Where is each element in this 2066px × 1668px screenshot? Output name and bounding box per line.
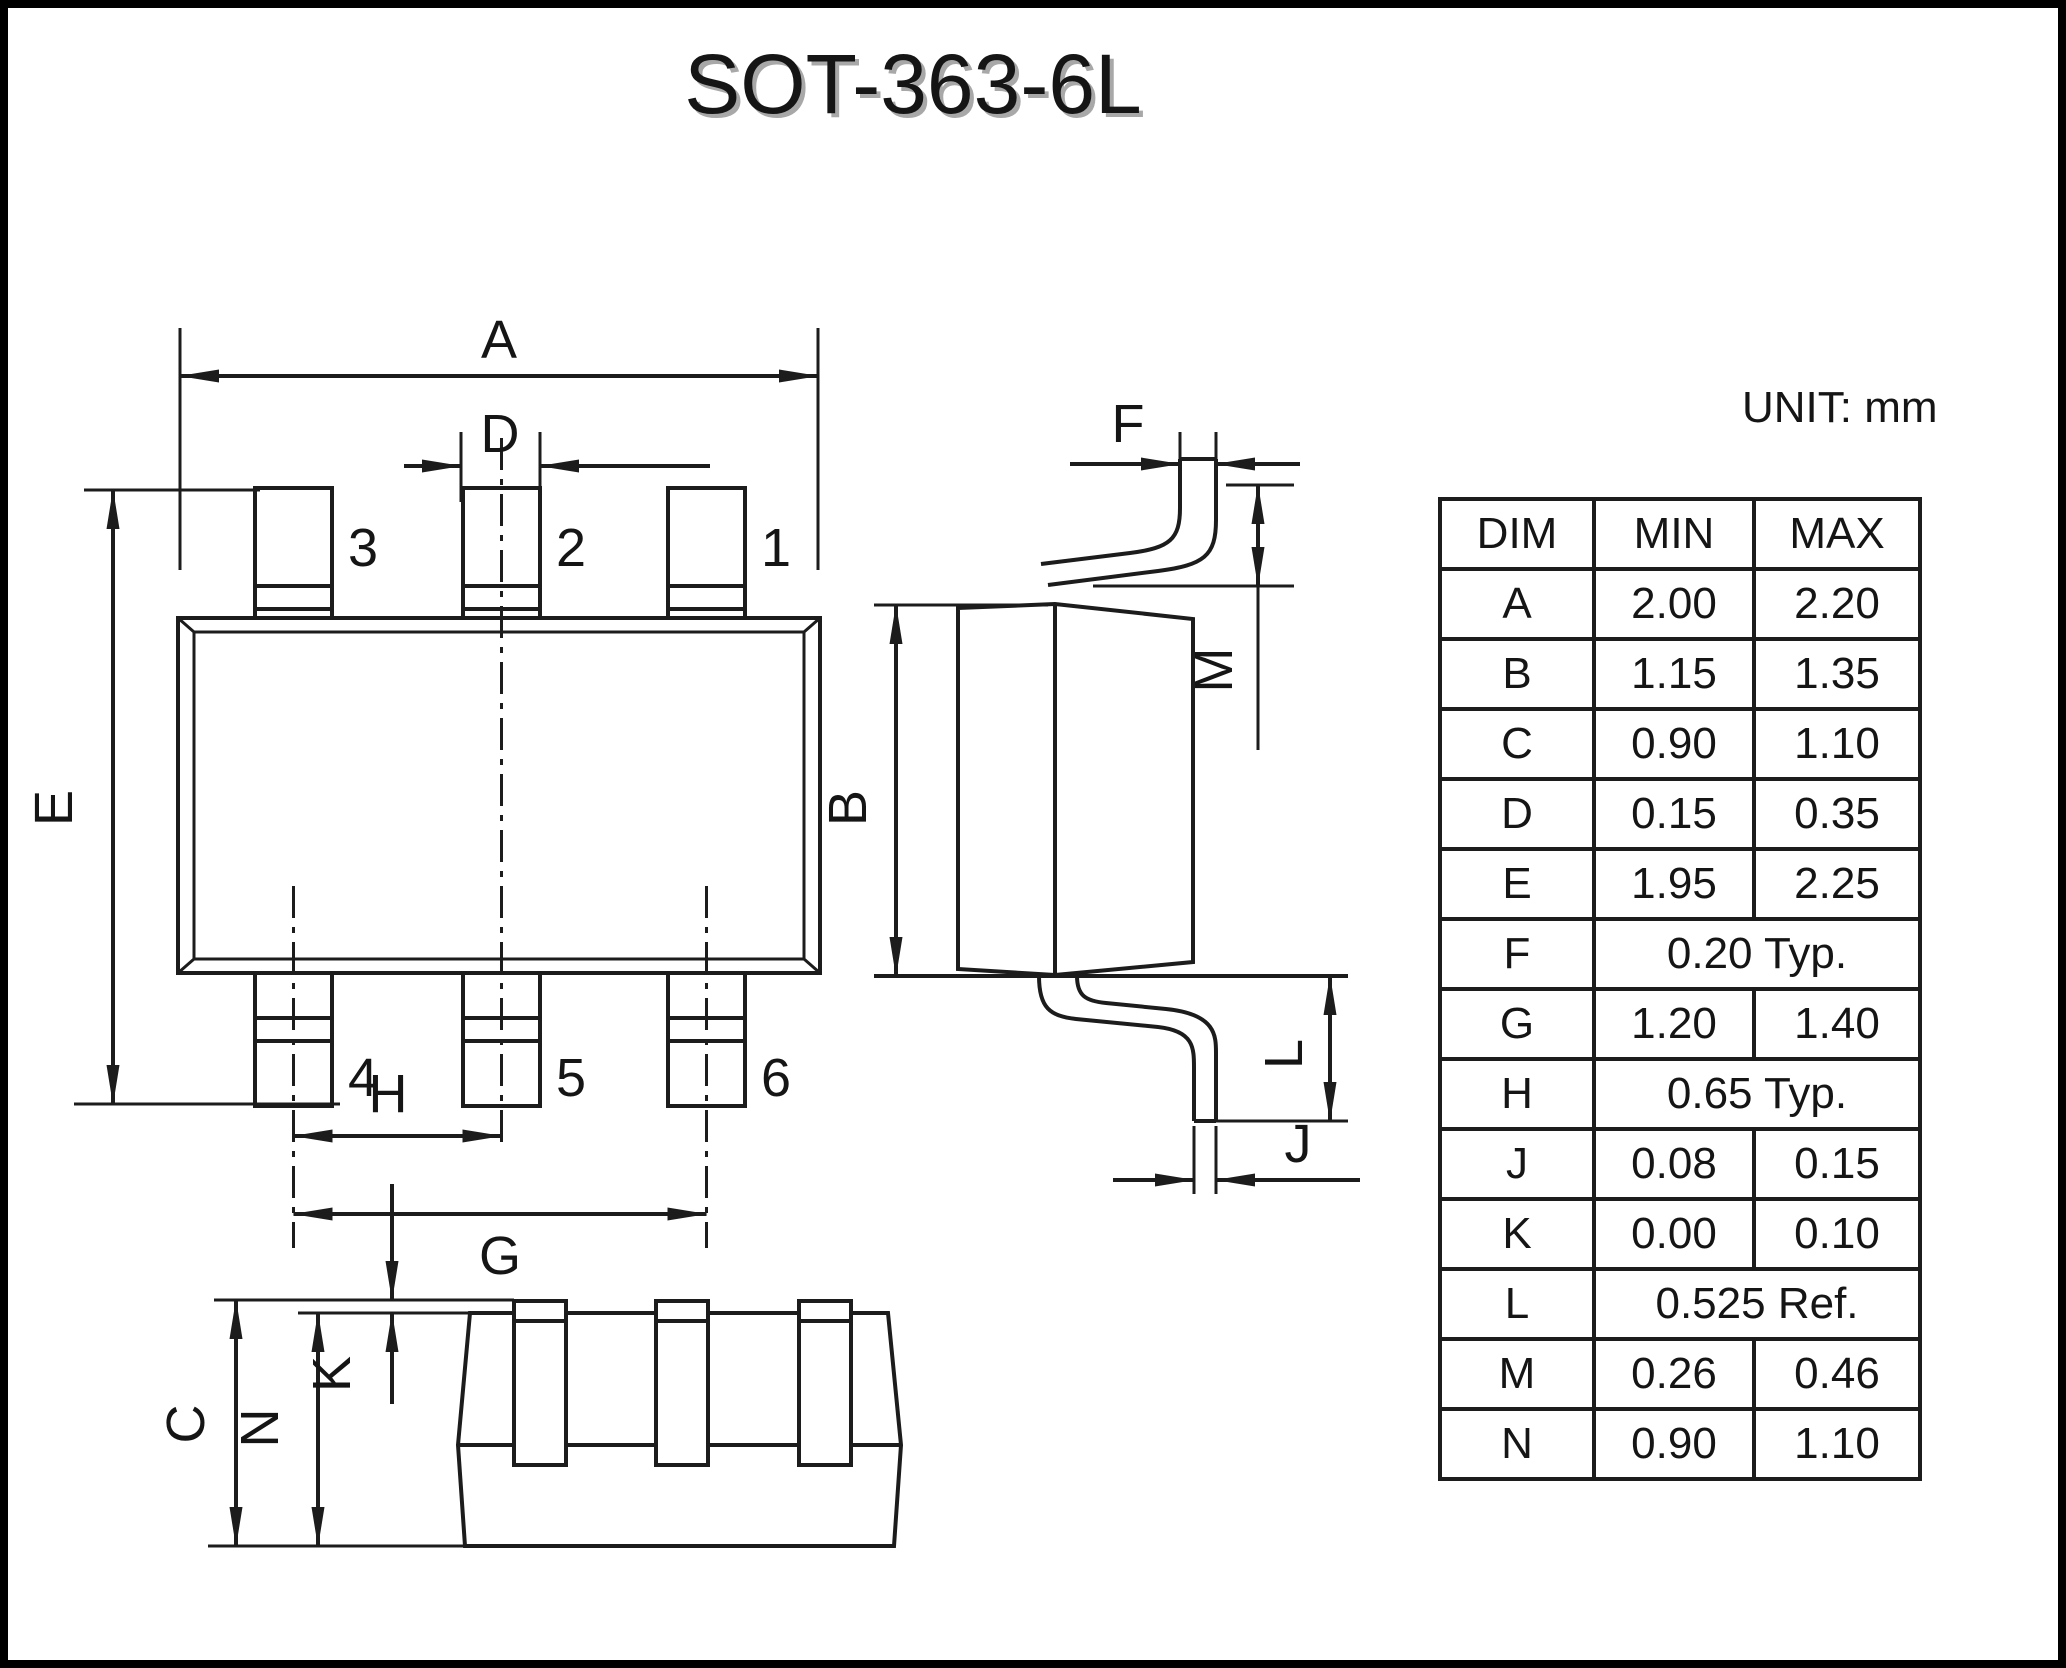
dim-label-J: J: [1285, 1114, 1312, 1174]
cell-min: 0.90: [1594, 1409, 1754, 1479]
header-dim: DIM: [1440, 499, 1594, 569]
dim-label-K: K: [302, 1356, 362, 1392]
table-row: C 0.90 1.10: [1440, 709, 1920, 779]
cell-dim: A: [1440, 569, 1594, 639]
dim-label-M: M: [1184, 648, 1244, 693]
top-lead-left-contour: [1041, 459, 1180, 564]
table-row: D 0.15 0.35: [1440, 779, 1920, 849]
page-title: SOT-363-6L: [684, 37, 1142, 131]
cell-dim: D: [1440, 779, 1594, 849]
cell-dim: K: [1440, 1199, 1594, 1269]
cell-max: 1.10: [1754, 709, 1920, 779]
cell-dim: B: [1440, 639, 1594, 709]
dim-D: [404, 432, 710, 502]
unit-label: UNIT: mm: [1742, 383, 1938, 432]
table-row: E 1.95 2.25: [1440, 849, 1920, 919]
front-tab-3: [799, 1301, 851, 1465]
pin2-number: 2: [556, 518, 586, 578]
pin1-lead: [668, 488, 745, 619]
dim-label-N: N: [230, 1409, 290, 1448]
pin1-number: 1: [761, 518, 791, 578]
cell-max: 1.10: [1754, 1409, 1920, 1479]
cell-span-value: 0.525 Ref.: [1594, 1269, 1920, 1339]
table-row-merged: L 0.525 Ref.: [1440, 1269, 1920, 1339]
cell-max: 0.10: [1754, 1199, 1920, 1269]
top-lead-right-contour: [1048, 459, 1216, 585]
cell-min: 0.15: [1594, 779, 1754, 849]
front-view-labels: C N K: [156, 1356, 362, 1448]
pin6-number: 6: [761, 1048, 791, 1108]
cell-dim: N: [1440, 1409, 1594, 1479]
dim-label-F: F: [1112, 394, 1145, 454]
bottom-lead-left-contour: [1039, 976, 1194, 1121]
cell-dim: L: [1440, 1269, 1594, 1339]
cell-min: 2.00: [1594, 569, 1754, 639]
cell-dim: C: [1440, 709, 1594, 779]
header-max: MAX: [1754, 499, 1920, 569]
dim-label-D: D: [481, 404, 520, 464]
cell-dim: M: [1440, 1339, 1594, 1409]
front-lead-tabs: [514, 1301, 851, 1465]
cell-dim: G: [1440, 989, 1594, 1059]
dim-J-extension-lines: [1194, 1126, 1216, 1194]
cell-min: 1.20: [1594, 989, 1754, 1059]
table-header-row: DIM MIN MAX: [1440, 499, 1920, 569]
cell-min: 0.08: [1594, 1129, 1754, 1199]
package-drawing-page: SOT-363-6L SOT-363-6L UNIT: mm: [0, 0, 2066, 1668]
pin3-lead: [255, 488, 332, 619]
header-min: MIN: [1594, 499, 1754, 569]
dim-label-B: B: [818, 790, 878, 826]
dim-label-G: G: [479, 1226, 521, 1286]
top-view: [74, 328, 820, 1248]
pin3-number: 3: [348, 518, 378, 578]
dim-M-reference-lines: [1093, 485, 1294, 586]
cell-dim: J: [1440, 1129, 1594, 1199]
cell-span-value: 0.65 Typ.: [1594, 1059, 1920, 1129]
table-row: N 0.90 1.10: [1440, 1409, 1920, 1479]
table-row-merged: H 0.65 Typ.: [1440, 1059, 1920, 1129]
cell-dim: E: [1440, 849, 1594, 919]
pin4-number: 4: [348, 1048, 378, 1108]
table-row: J 0.08 0.15: [1440, 1129, 1920, 1199]
table-row: M 0.26 0.46: [1440, 1339, 1920, 1409]
dim-J: [1113, 1126, 1360, 1194]
table-row: B 1.15 1.35: [1440, 639, 1920, 709]
cell-min: 1.95: [1594, 849, 1754, 919]
table-row: G 1.20 1.40: [1440, 989, 1920, 1059]
cell-span-value: 0.20 Typ.: [1594, 919, 1920, 989]
cell-min: 1.15: [1594, 639, 1754, 709]
cell-max: 0.35: [1754, 779, 1920, 849]
cell-min: 0.00: [1594, 1199, 1754, 1269]
title-block: SOT-363-6L SOT-363-6L: [684, 37, 1146, 135]
table-row-merged: F 0.20 Typ.: [1440, 919, 1920, 989]
dimension-table: DIM MIN MAX A 2.00 2.20 B 1.15 1.35 C 0.…: [1438, 497, 1922, 1481]
cell-max: 0.46: [1754, 1339, 1920, 1409]
cell-min: 0.90: [1594, 709, 1754, 779]
side-body-outline: [958, 604, 1193, 975]
pin5-number: 5: [556, 1048, 586, 1108]
cell-max: 1.35: [1754, 639, 1920, 709]
cell-max: 1.40: [1754, 989, 1920, 1059]
side-view: [874, 432, 1360, 1194]
front-tab-1: [514, 1301, 566, 1465]
cell-max: 2.20: [1754, 569, 1920, 639]
package-body-outline: [178, 618, 820, 973]
cell-dim: H: [1440, 1059, 1594, 1129]
cell-max: 2.25: [1754, 849, 1920, 919]
table-row: K 0.00 0.10: [1440, 1199, 1920, 1269]
table-row: A 2.00 2.20: [1440, 569, 1920, 639]
cell-min: 0.26: [1594, 1339, 1754, 1409]
front-tab-2: [656, 1301, 708, 1465]
cell-dim: F: [1440, 919, 1594, 989]
dim-label-L: L: [1254, 1039, 1314, 1069]
dim-label-A: A: [481, 310, 517, 370]
dim-label-C: C: [156, 1405, 216, 1444]
cell-max: 0.15: [1754, 1129, 1920, 1199]
dim-label-E: E: [24, 790, 84, 826]
